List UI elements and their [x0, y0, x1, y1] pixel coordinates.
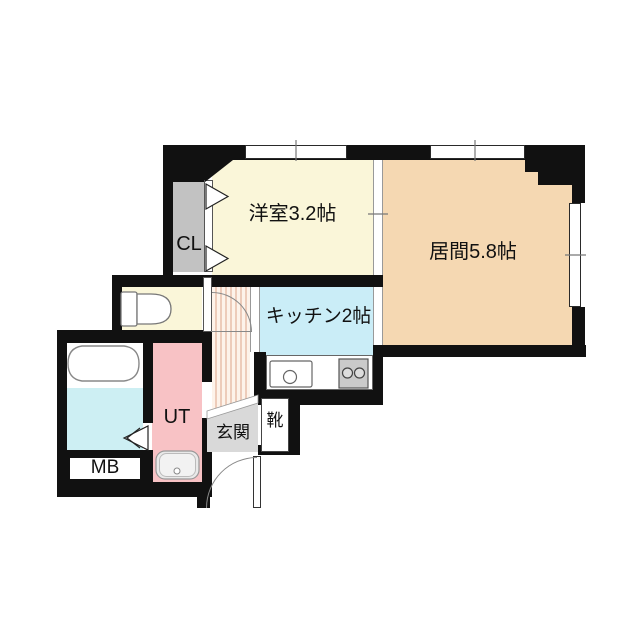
utility-label: UT: [152, 406, 202, 428]
floor-plan: CL 洋室3.2帖 居間5.8帖 キッチン2帖 UT MB 玄関 靴: [0, 0, 639, 640]
closet-label: CL: [173, 233, 205, 255]
washbasin-icon: [156, 451, 199, 479]
shoe-cabinet-label: 靴: [261, 412, 289, 431]
bathtub-icon: [68, 346, 139, 381]
kitchen-sink-icon: [270, 361, 312, 387]
stove-icon: [339, 359, 368, 388]
entrance-label: 玄関: [208, 424, 258, 443]
living-room-label: 居間5.8帖: [383, 241, 563, 263]
wall-corner: [205, 160, 233, 182]
closet-door-triangle: [206, 246, 228, 271]
western-room-label: 洋室3.2帖: [212, 203, 373, 225]
meter-box-label: MB: [67, 458, 143, 479]
toilet-icon: [121, 292, 171, 326]
kitchen-label: キッチン2帖: [262, 307, 375, 328]
